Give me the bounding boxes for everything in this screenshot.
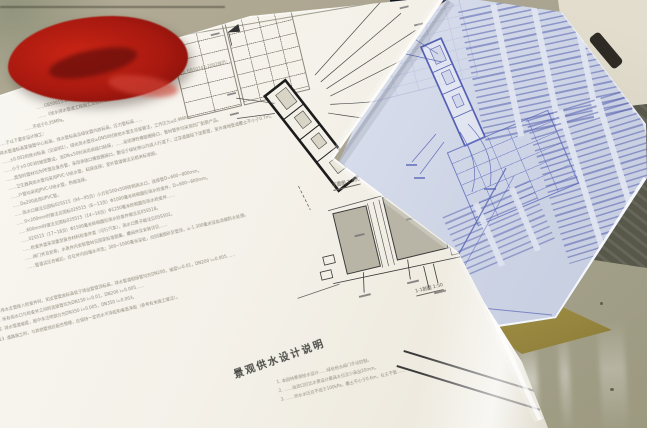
floor-reflection: [557, 330, 572, 428]
floor-reflection: [597, 319, 629, 428]
floor-speck: [600, 302, 603, 305]
photo-of-drawings: ……2006（2006年版）；……GB50015-2003（2009年版）；《建…: [0, 0, 647, 428]
floor-speck: [610, 388, 614, 391]
floor-tile-joint: [0, 6, 225, 8]
